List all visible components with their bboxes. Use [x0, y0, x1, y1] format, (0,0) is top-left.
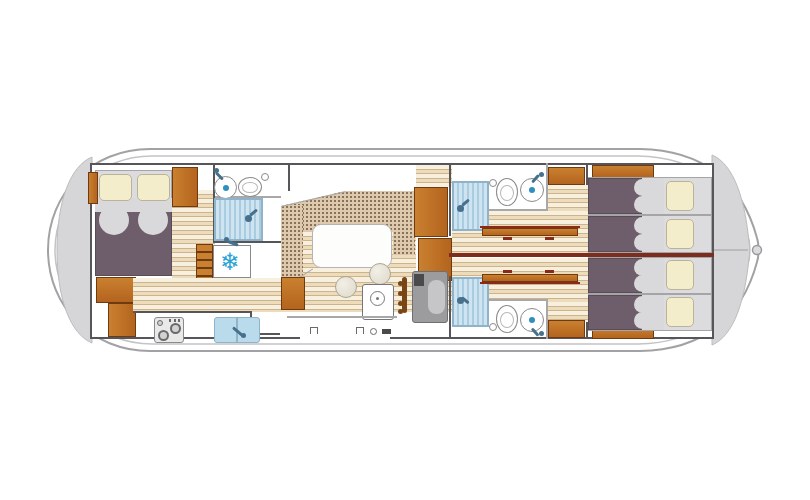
- toilet-paper: [489, 323, 497, 331]
- sheet-scallop: [634, 275, 651, 292]
- dinette-bench-right: [393, 191, 415, 255]
- pillow: [666, 260, 694, 290]
- pillow: [666, 181, 694, 211]
- toilet-paper: [261, 173, 269, 181]
- fold-table-handle: [545, 270, 554, 273]
- toilet-paper: [489, 179, 497, 187]
- stove-burner: [170, 323, 181, 334]
- dinette-bench-left: [281, 205, 303, 280]
- bathroom-partition: [488, 209, 548, 211]
- sheet-scallop: [634, 312, 651, 329]
- door-hardware: [370, 328, 377, 335]
- faucet-handle: [224, 237, 229, 242]
- faucet-handle: [539, 331, 544, 336]
- bow-cleat: [753, 246, 762, 255]
- cabinet: [548, 320, 585, 338]
- sheet-scallop: [634, 296, 651, 313]
- toilet-aft: [238, 177, 262, 197]
- cabinet: [281, 277, 305, 310]
- port-cabin-floor: [548, 185, 588, 211]
- stool: [335, 276, 357, 298]
- wall: [449, 163, 451, 236]
- centre-wall-bow: [586, 253, 714, 257]
- shower-aft: [214, 198, 263, 241]
- toilet-forward-starboard: [496, 305, 518, 333]
- fold-table-rail: [480, 226, 580, 228]
- sheet-scallop: [138, 205, 168, 235]
- wheel-knob: [398, 301, 403, 306]
- companionway-steps: [196, 244, 213, 281]
- faucet-handle: [241, 333, 246, 338]
- helm-instrument-dot: [376, 297, 379, 300]
- galley-counter-edge: [133, 311, 252, 313]
- drain-dot: [223, 185, 229, 191]
- sheet-scallop: [634, 259, 651, 276]
- stove-burner: [158, 330, 169, 341]
- wall: [449, 276, 451, 339]
- cabinet: [108, 303, 136, 337]
- cabinet: [172, 167, 198, 207]
- cabinet: [88, 172, 98, 204]
- dinette-table: [312, 224, 392, 268]
- door-stop: [356, 327, 364, 334]
- drain-dot: [529, 317, 535, 323]
- stool: [369, 263, 391, 285]
- wardrobe: [414, 187, 448, 237]
- faucet-handle: [214, 168, 219, 173]
- door-stop: [310, 327, 318, 334]
- pillow: [666, 219, 694, 249]
- sheet-scallop: [99, 205, 129, 235]
- fridge-snowflake-icon: ❄: [220, 250, 240, 274]
- wheel-knob: [398, 309, 403, 314]
- fold-table: [482, 228, 578, 236]
- wheel-knob: [398, 281, 403, 286]
- cockpit-edge: [287, 316, 397, 318]
- stove-knobs: [169, 319, 182, 322]
- cabinet: [548, 167, 585, 185]
- door-opening-mask: [300, 336, 390, 342]
- sheet-scallop: [634, 234, 651, 251]
- pillow: [666, 297, 694, 327]
- stove-burner-small: [157, 320, 163, 326]
- faucet-handle: [539, 172, 544, 177]
- fold-table-handle: [545, 237, 554, 240]
- door-hardware: [382, 329, 391, 334]
- fold-table: [482, 274, 578, 282]
- wheel-knob: [398, 291, 403, 296]
- bathroom-partition: [488, 299, 548, 301]
- sheet-scallop: [634, 196, 651, 213]
- toilet-forward-port: [496, 178, 518, 206]
- helm-seat-cushion: [428, 280, 445, 314]
- cabinet: [96, 277, 136, 303]
- stbd-cabin-floor: [548, 302, 588, 322]
- fold-table-rail: [480, 282, 580, 284]
- helm-panel: [414, 274, 424, 286]
- drain-dot: [529, 187, 535, 193]
- floorplan-canvas: ❄: [0, 0, 810, 500]
- stern-deck: [57, 157, 92, 343]
- pillow: [99, 174, 132, 201]
- pillow: [137, 174, 170, 201]
- upper-corridor-floor: [416, 165, 452, 187]
- fold-table-handle: [503, 270, 512, 273]
- sheet-scallop: [634, 217, 651, 234]
- sheet-scallop: [634, 179, 651, 196]
- fold-table-handle: [503, 237, 512, 240]
